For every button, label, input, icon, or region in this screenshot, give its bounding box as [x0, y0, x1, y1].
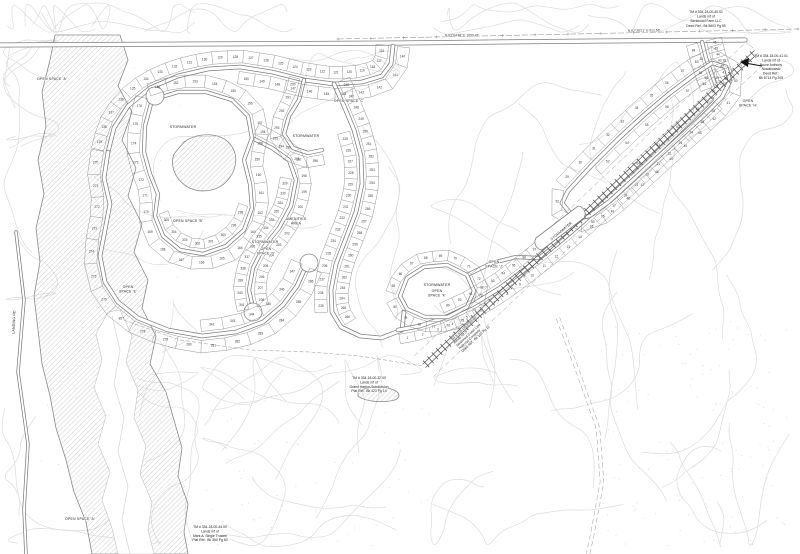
lot-number: 342 — [209, 323, 215, 327]
lot-number: 125 — [278, 61, 284, 65]
lot-number: 127 — [248, 56, 254, 60]
lot-number: 340 — [237, 291, 243, 295]
lot-line — [614, 149, 620, 155]
stipple-dot — [661, 456, 662, 457]
lot-line — [239, 203, 248, 206]
contour-line — [441, 4, 619, 21]
lot-number: 171 — [142, 194, 148, 198]
lot-number: 334 — [263, 226, 269, 230]
lot-line — [272, 55, 274, 67]
stipple-dot — [763, 407, 764, 408]
stipple-dot — [728, 349, 729, 350]
lot-number: 198 — [301, 174, 307, 178]
lot-number: 84 — [692, 48, 696, 52]
stipple-dot — [253, 519, 254, 520]
lot-number: 135 — [130, 86, 136, 90]
stipple-dot — [773, 441, 774, 442]
lot-line — [280, 177, 291, 179]
lot-line — [168, 251, 174, 262]
lot-line — [341, 143, 353, 146]
lot-line — [315, 285, 327, 286]
lot-number: 275 — [91, 274, 97, 278]
lot-number: 271 — [93, 184, 99, 188]
rail-tie — [645, 150, 651, 157]
stipple-dot — [636, 503, 637, 504]
stipple-dot — [628, 401, 629, 402]
label-landing-rd: LANDING RD — [12, 310, 17, 334]
stipple-dot — [206, 490, 207, 491]
lot-line — [552, 210, 562, 216]
lot-number: 153 — [192, 79, 198, 83]
contour-line — [642, 274, 756, 453]
stipple-dot — [764, 423, 765, 424]
lot-number: 284 — [279, 318, 285, 322]
lot-number: 33 — [620, 119, 624, 123]
lot-number: 261 — [344, 264, 350, 268]
lot-line — [366, 163, 378, 164]
rail-tie — [432, 352, 438, 359]
lot-number: 264 — [339, 297, 345, 301]
lot-number: 258 — [357, 231, 363, 235]
lot-line — [344, 167, 357, 168]
lot-number: 141 — [393, 73, 399, 77]
contour-line — [226, 381, 339, 463]
stipple-dot — [258, 440, 259, 441]
lot-number: 97 — [533, 248, 537, 252]
lot-line — [255, 293, 267, 294]
lot-number: 5 — [466, 316, 468, 320]
lot-number: 64 — [636, 162, 640, 166]
stipple-dot — [628, 334, 629, 335]
rail-tie — [427, 357, 433, 364]
lot-line — [140, 220, 152, 222]
stipple-dot — [676, 336, 677, 337]
parcel-note-line: Plat Ref.: Bk 350 Pg 60 — [192, 538, 227, 542]
stipple-dot — [403, 409, 404, 410]
stipple-dot — [295, 486, 296, 487]
lot-line — [556, 180, 565, 188]
lot-number: 7 — [493, 300, 495, 304]
lot-number: 117 — [377, 59, 382, 63]
stipple-dot — [177, 277, 178, 278]
contour-line — [222, 358, 286, 451]
stipple-dot — [707, 506, 708, 507]
lot-number: 283 — [258, 332, 264, 336]
stipple-dot — [760, 335, 761, 336]
lot-line — [252, 109, 263, 115]
lot-number: 48 — [626, 196, 630, 200]
lot-number: 70 — [454, 257, 458, 261]
lot-number: 78 — [417, 322, 421, 326]
stipple-dot — [320, 409, 321, 410]
lot-line — [460, 257, 465, 266]
contour-line — [226, 515, 396, 546]
stipple-dot — [384, 432, 385, 433]
lot-line — [301, 289, 312, 295]
lot-number: 148 — [275, 83, 281, 87]
stipple-dot — [730, 526, 731, 527]
stipple-dot — [709, 333, 710, 334]
contour-line — [551, 313, 693, 411]
lot-number: 56 — [665, 105, 669, 109]
lot-line — [247, 333, 251, 345]
lot-line — [211, 256, 213, 268]
lot-number: 239 — [318, 304, 324, 308]
label-os-a-top: OPEN SPACE 'A' — [37, 77, 67, 81]
rail-tie — [733, 68, 739, 75]
lot-line — [671, 72, 678, 81]
stipple-dot — [783, 523, 784, 524]
parcel-note-line: Lands n/f of — [201, 529, 219, 533]
lot-number: 146 — [307, 90, 313, 94]
lot-number: 235 — [326, 251, 332, 255]
lot-number: 46 — [713, 40, 717, 44]
contour-line — [145, 4, 288, 31]
stipple-dot — [773, 409, 774, 410]
stipple-dot — [618, 389, 619, 390]
lot-line — [323, 154, 325, 164]
lot-line — [138, 187, 150, 190]
lot-line — [387, 298, 396, 303]
lot-line — [505, 265, 511, 273]
contour-line — [431, 471, 493, 544]
lot-number: 250 — [363, 129, 369, 133]
lot-line — [255, 282, 266, 283]
lot-line — [495, 273, 501, 282]
label-os-j: SPACE 'J' — [485, 265, 503, 269]
lot-line — [432, 251, 433, 262]
stipple-dot — [58, 464, 59, 465]
lot-number: 160 — [256, 173, 262, 177]
lot-number: 80 — [393, 305, 397, 309]
stipple-dot — [606, 344, 607, 345]
stipple-dot — [75, 503, 76, 504]
lot-number: 346 — [279, 288, 285, 292]
lot-number: 130 — [202, 57, 208, 61]
lot-line — [269, 323, 276, 334]
lot-line — [386, 291, 396, 295]
lot-line — [337, 282, 349, 284]
lot-line — [595, 168, 601, 174]
lot-line — [330, 233, 342, 237]
lot-number: 89 — [446, 304, 450, 308]
lot-number: 282 — [235, 339, 241, 343]
lot-number: 156 — [247, 102, 253, 106]
stipple-dot — [282, 505, 283, 506]
stipple-dot — [616, 411, 617, 412]
lot-number: 246 — [344, 83, 350, 87]
stipple-dot — [41, 460, 42, 461]
rail-tie — [423, 361, 429, 368]
stipple-dot — [694, 466, 695, 467]
parcel-note-line: Grand Harbor Subdivision — [349, 385, 388, 389]
stipple-dot — [704, 541, 705, 542]
parcel-note-line: TM # 334-18-00-32.00 — [352, 376, 386, 380]
stipple-dot — [750, 457, 751, 458]
lot-line — [597, 138, 605, 146]
lot-line — [366, 189, 378, 191]
lot-number: 259 — [352, 242, 358, 246]
stipple-dot — [276, 495, 277, 496]
stipple-dot — [242, 504, 243, 505]
lot-number: 9 — [519, 283, 521, 287]
stipple-dot — [227, 459, 228, 460]
stipple-dot — [184, 486, 185, 487]
lot-number: 95 — [512, 264, 516, 268]
label-amenities: AMENITIES — [286, 217, 307, 221]
lot-line — [640, 97, 648, 106]
stipple-dot — [659, 345, 660, 346]
lot-line — [655, 84, 662, 93]
lot-number: 62 — [676, 125, 680, 129]
stipple-dot — [260, 517, 261, 518]
lot-line — [229, 250, 235, 261]
stipple-dot — [668, 545, 669, 546]
lot-number: 298 — [238, 210, 244, 214]
lot-line — [343, 259, 355, 263]
lot-line — [315, 65, 317, 77]
lot-number: 54 — [625, 141, 629, 145]
stipple-dot — [270, 545, 271, 546]
stipple-dot — [768, 446, 769, 447]
lot-number: 295 — [294, 157, 300, 161]
contour-line — [434, 368, 517, 386]
bearing-b1: N 63°04'48" E 1059.43' — [445, 34, 479, 38]
parcel-note-line: Bk 5714 Pg 205 — [759, 76, 783, 80]
lot-number: 136 — [118, 98, 124, 102]
stipple-dot — [769, 426, 770, 427]
lot-line — [645, 151, 651, 157]
rail-tie — [624, 171, 630, 178]
stipple-dot — [171, 180, 172, 181]
contour-line — [515, 261, 637, 409]
contour-line — [519, 104, 607, 183]
lot-number: 65 — [392, 284, 396, 288]
stipple-dot — [738, 328, 739, 329]
rail-tie — [641, 155, 647, 162]
lot-line — [281, 102, 291, 107]
stipple-dot — [297, 444, 298, 445]
lot-line — [165, 63, 170, 75]
lot-line — [347, 248, 359, 253]
lot-number: 277 — [119, 317, 125, 321]
lot-number: 339 — [238, 278, 244, 282]
lot-number: 347 — [290, 270, 296, 274]
farm-path — [560, 317, 604, 554]
contour-line — [7, 5, 110, 32]
rail-tie — [663, 134, 669, 141]
stipple-dot — [265, 401, 266, 402]
stipple-dot — [607, 515, 608, 516]
lot-number: 36 — [665, 81, 669, 85]
lot-number: 151 — [155, 85, 161, 89]
lot-number: 233 — [335, 228, 341, 232]
lot-line — [301, 62, 304, 74]
lot-number: 124 — [292, 65, 298, 69]
lot-number: 251 — [366, 142, 372, 146]
rail-tie — [615, 179, 621, 186]
lot-number: 161 — [259, 191, 265, 195]
lot-number: 92 — [480, 286, 484, 290]
lot-number: 139 — [97, 140, 103, 144]
lot-line — [283, 278, 293, 284]
lot-number: 25 — [701, 120, 705, 124]
stipple-dot — [326, 506, 327, 507]
parcel-note-line: Deed Ref.: — [763, 72, 779, 76]
stipple-dot — [760, 444, 761, 445]
lot-number: 337 — [244, 255, 250, 259]
lot-number: 335 — [256, 235, 262, 239]
rail-tie — [606, 188, 612, 195]
lot-block-edge — [348, 77, 379, 318]
label-os-j: OPEN — [489, 260, 500, 264]
lot-number: 19 — [635, 183, 639, 187]
lot-number: 232 — [340, 216, 346, 220]
lot-number: 94 — [501, 272, 505, 276]
lot-number: 21 — [657, 162, 661, 166]
lot-number: 4 — [452, 322, 454, 326]
plat-map-page: 1161171181191201211221231241251261271281… — [0, 0, 800, 554]
lot-line — [317, 271, 329, 274]
stormwater-pond — [173, 135, 236, 191]
stipple-dot — [643, 518, 644, 519]
lot-number: 343 — [230, 319, 236, 323]
lot-number: 165 — [219, 257, 225, 261]
stipple-dot — [616, 535, 617, 536]
stipple-dot — [730, 321, 731, 322]
lot-line — [263, 258, 273, 264]
lot-number: 273 — [92, 226, 98, 230]
lot-number: 31 — [592, 147, 596, 151]
lot-number: 55 — [645, 123, 649, 127]
lot-number: 254 — [369, 181, 375, 185]
lot-number: 280 — [186, 343, 192, 347]
lot-line — [402, 264, 409, 272]
stipple-dot — [732, 517, 733, 518]
lot-number: 57 — [686, 89, 690, 93]
stipple-dot — [376, 425, 377, 426]
lot-number: 143 — [359, 90, 365, 94]
lot-line — [273, 117, 283, 120]
lot-line — [140, 203, 153, 204]
lot-line — [245, 249, 255, 254]
stipple-dot — [741, 455, 742, 456]
lot-number: 122 — [320, 70, 326, 74]
lot-number: 142 — [377, 86, 383, 90]
lot-number: 253 — [370, 168, 376, 172]
lot-number: 120 — [347, 70, 353, 74]
lot-number: 234 — [331, 239, 337, 243]
label-os-e: OPEN — [123, 285, 134, 289]
contour-line — [201, 368, 339, 422]
lot-number: 43 — [718, 58, 722, 62]
stipple-dot — [732, 393, 733, 394]
lot-number: 77 — [432, 325, 436, 329]
stipple-dot — [239, 471, 240, 472]
lot-number: 270 — [93, 161, 99, 165]
lot-line — [236, 273, 247, 275]
lot-number: 200 — [298, 205, 304, 209]
lot-number: 265 — [341, 306, 347, 310]
lot-line — [391, 277, 400, 282]
lot-number: 129 — [217, 56, 223, 60]
lot-number: 37 — [681, 69, 685, 73]
stipple-dot — [608, 530, 609, 531]
rail-tie — [484, 303, 490, 310]
lot-number: 35 — [650, 93, 654, 97]
lot-number: 73 — [479, 294, 483, 298]
lot-line — [336, 293, 349, 294]
stipple-dot — [311, 539, 312, 540]
lot-number: 301 — [208, 240, 214, 244]
lot-number: 17 — [612, 204, 616, 208]
lot-line — [252, 221, 264, 225]
stipple-dot — [421, 408, 422, 409]
lot-number: 304 — [171, 230, 177, 234]
lot-number: 133 — [157, 70, 163, 74]
lot-line — [687, 43, 698, 46]
lot-line — [278, 188, 289, 190]
lot-line — [128, 133, 140, 134]
stipple-dot — [690, 385, 691, 386]
lot-number: 63 — [656, 143, 660, 147]
lot-line — [191, 257, 193, 269]
stipple-dot — [614, 477, 615, 478]
stipple-dot — [648, 394, 649, 395]
lot-number: 276 — [101, 298, 107, 302]
parcel-note-line: TM # 334-18-00-41.01 — [754, 54, 788, 58]
parcel-note-line: Nowakowski — [762, 67, 781, 71]
stipple-dot — [222, 521, 223, 522]
stipple-dot — [706, 504, 707, 505]
lot-line — [257, 269, 268, 273]
lot-number: 302 — [195, 241, 201, 245]
stipple-dot — [660, 442, 661, 443]
lot-line — [227, 51, 228, 64]
rail-tie — [706, 93, 712, 100]
contour-line — [447, 3, 589, 33]
lot-number: 164 — [237, 246, 243, 250]
lot-number: 44 — [716, 53, 720, 57]
stipple-dot — [701, 477, 702, 478]
label-os-a-bottom: OPEN SPACE 'A' — [65, 517, 95, 521]
lot-line — [329, 66, 330, 79]
stipple-dot — [772, 486, 773, 487]
lot-number: 281 — [211, 343, 217, 347]
lot-number: 118 — [370, 65, 375, 69]
cul-de-sac — [300, 254, 318, 272]
stipple-dot — [679, 500, 680, 501]
stipple-dot — [254, 443, 255, 444]
lot-number: 134 — [143, 77, 149, 81]
lot-line — [239, 90, 246, 100]
lot-line — [429, 328, 432, 337]
lot-number: 228 — [348, 171, 354, 175]
lot-number: 157 — [257, 121, 263, 125]
stipple-dot — [713, 410, 714, 411]
stipple-dot — [703, 365, 704, 366]
stipple-dot — [392, 517, 393, 518]
lot-number: 52 — [556, 199, 560, 203]
lot-line — [535, 267, 541, 275]
stipple-dot — [682, 363, 683, 364]
rail-tie — [619, 175, 625, 182]
lot-line — [293, 212, 304, 217]
rail-tie — [445, 340, 451, 347]
lot-number: 169 — [147, 230, 153, 234]
lot-line — [284, 80, 287, 92]
lot-number: 248 — [354, 106, 360, 110]
